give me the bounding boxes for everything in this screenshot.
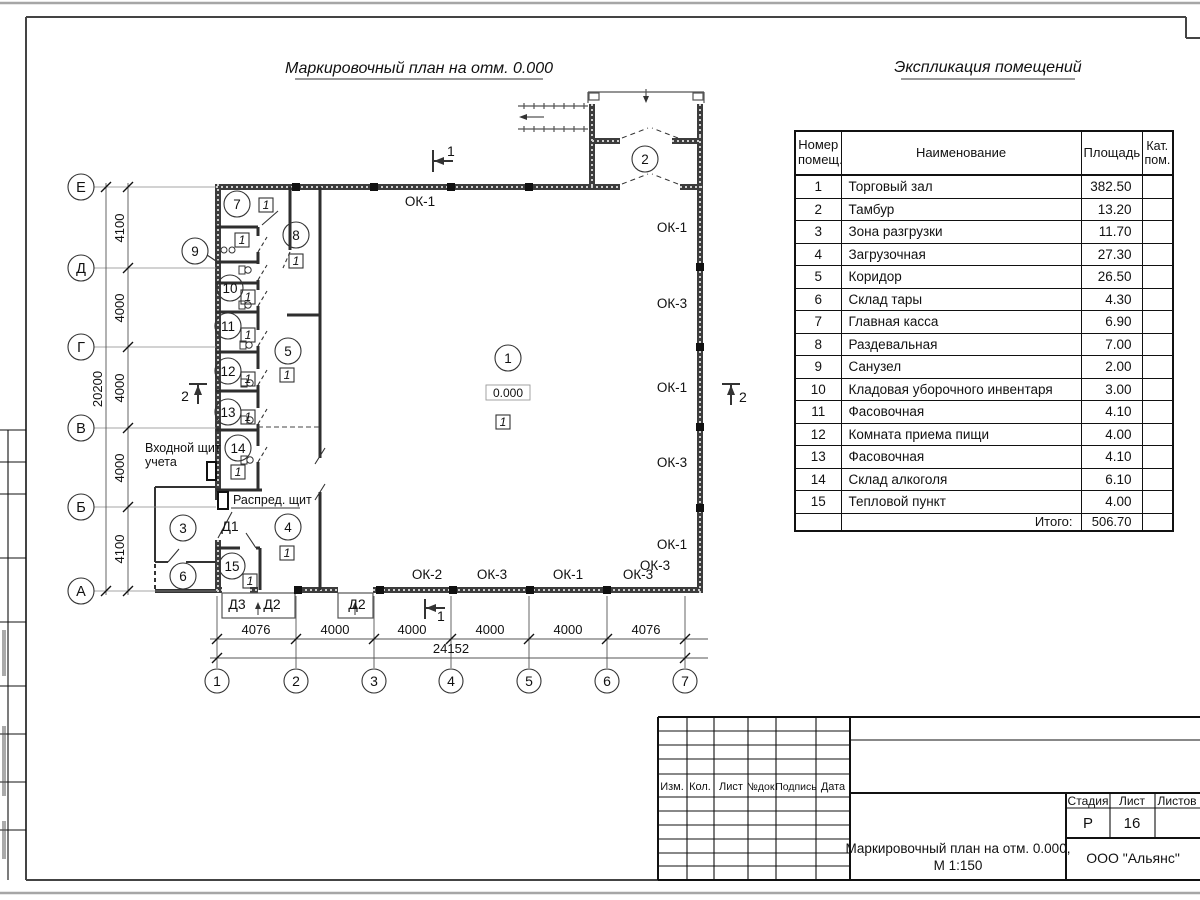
svg-text:4: 4: [447, 673, 455, 689]
dim-v3: 4000: [112, 374, 127, 403]
svg-text:14: 14: [230, 441, 246, 456]
door-label-d3: Д3: [228, 596, 245, 612]
entry-board-label-line1: Входной щит: [145, 441, 221, 455]
svg-text:5: 5: [525, 673, 533, 689]
dim-v2: 4000: [112, 294, 127, 323]
dim-v-total: 20200: [90, 371, 105, 407]
col-header-area: Площадь: [1081, 131, 1142, 175]
table-row: 5Коридор26.50: [795, 266, 1173, 289]
room-name: Зона разгрузки: [841, 221, 1081, 244]
room-num: 6: [795, 288, 841, 311]
axis-col-1: 1: [205, 669, 229, 693]
distribution-board-symbol: [218, 492, 228, 509]
stage-value: Р: [1083, 815, 1093, 832]
explication-title: Экспликация помещений: [894, 59, 1081, 76]
svg-text:1: 1: [245, 410, 252, 424]
type-marker: 1: [259, 198, 273, 212]
svg-text:1: 1: [245, 328, 252, 342]
stamp-vertical-text: [2, 726, 6, 796]
room-area: 4.30: [1081, 288, 1142, 311]
sheet-value: 16: [1124, 815, 1141, 832]
dim-h2: 4000: [321, 622, 350, 637]
svg-text:12: 12: [220, 364, 235, 379]
axis-row-d: Д: [68, 255, 94, 281]
room-num: 14: [795, 468, 841, 491]
svg-text:9: 9: [191, 244, 199, 259]
section-mark-2-left: 2: [181, 384, 207, 404]
table-header-row: Номер помещ. Наименование Площадь Кат. п…: [795, 131, 1173, 175]
title-block: Изм. Кол. Лист №док. Подпись Дата Стадия…: [658, 717, 1200, 880]
explication-table: Номер помещ. Наименование Площадь Кат. п…: [794, 130, 1172, 532]
svg-text:1: 1: [239, 233, 246, 247]
tb-header-podpis: Подпись: [775, 781, 817, 793]
room-area: 4.00: [1081, 491, 1142, 514]
room-label-15: 15: [219, 553, 245, 579]
table-row: 8Раздевальная7.00: [795, 333, 1173, 356]
section-mark-1-top: 1: [433, 143, 455, 172]
tb-header-data: Дата: [821, 781, 846, 793]
room-name: Санузел: [841, 356, 1081, 379]
room-label-1: 1: [495, 345, 521, 371]
axis-col-2: 2: [284, 669, 308, 693]
axis-row-e: Е: [68, 174, 94, 200]
room-area: 6.10: [1081, 468, 1142, 491]
svg-text:3: 3: [179, 521, 187, 536]
dim-v4: 4000: [112, 454, 127, 483]
svg-text:3: 3: [370, 673, 378, 689]
room-label-6: 6: [170, 563, 196, 589]
svg-text:15: 15: [224, 559, 239, 574]
table-row: 13Фасовочная4.10: [795, 446, 1173, 469]
table-total-row: Итого: 506.70: [795, 513, 1173, 531]
room-name: Фасовочная: [841, 446, 1081, 469]
window-label-top: ОК-1: [405, 194, 435, 209]
stamp-vertical-text: [2, 821, 6, 859]
room-area: 13.20: [1081, 198, 1142, 221]
type-marker: 1: [496, 415, 510, 429]
room-num: 4: [795, 243, 841, 266]
dim-h1: 4076: [242, 622, 271, 637]
elevation-mark: 0.000: [486, 385, 530, 400]
room-num: 8: [795, 333, 841, 356]
room-area: 382.50: [1081, 175, 1142, 198]
entry-board-symbol: [207, 462, 216, 480]
table-row: 1Торговый зал382.50: [795, 175, 1173, 198]
room-label-14: 14: [225, 435, 251, 461]
dim-h4: 4000: [476, 622, 505, 637]
svg-text:1: 1: [437, 608, 445, 624]
total-empty: [795, 513, 841, 531]
column-axes: 1 2 3 4 5 6 7: [205, 669, 697, 693]
room-num: 10: [795, 378, 841, 401]
room-name: Кладовая уборочного инвентаря: [841, 378, 1081, 401]
room-label-8: 8: [283, 222, 309, 248]
room-cat: [1142, 311, 1173, 334]
distribution-board-label: Распред. щит: [233, 493, 312, 507]
room-num: 9: [795, 356, 841, 379]
room-num: 5: [795, 266, 841, 289]
svg-text:6: 6: [603, 673, 611, 689]
window-label-bottom: ОК-2: [412, 567, 442, 582]
room-name: Торговый зал: [841, 175, 1081, 198]
col-header-cat: Кат. пом.: [1142, 131, 1173, 175]
svg-text:1: 1: [293, 254, 300, 268]
sheet-label: Лист: [1119, 794, 1146, 808]
svg-text:1: 1: [284, 546, 291, 560]
horizontal-dimensions: 4076 4000 4000 4000 4000 4076 24152: [210, 596, 708, 668]
arrow-up-icon: [255, 602, 261, 609]
room-name: Склад алкоголя: [841, 468, 1081, 491]
svg-text:2: 2: [739, 389, 747, 405]
doc-title-line1: Маркировочный план на отм. 0.000,: [846, 841, 1071, 856]
type-marker: 1: [235, 233, 249, 247]
tb-header-kol: Кол.: [689, 781, 711, 793]
total-value: 506.70: [1081, 513, 1142, 531]
room-label-3: 3: [170, 515, 196, 541]
axis-col-6: 6: [595, 669, 619, 693]
dim-v1: 4100: [112, 214, 127, 243]
vertical-dimensions: 4100 4000 4000 4000 4100 20200: [90, 182, 133, 596]
total-label: Итого:: [841, 513, 1081, 531]
room-name: Фасовочная: [841, 401, 1081, 424]
table-row: 6Склад тары4.30: [795, 288, 1173, 311]
room-area: 4.10: [1081, 446, 1142, 469]
col-header-name: Наименование: [841, 131, 1081, 175]
window-label-bottom: ОК-3: [623, 567, 653, 582]
room-num: 2: [795, 198, 841, 221]
room-cat: [1142, 446, 1173, 469]
svg-text:1: 1: [247, 574, 254, 588]
axis-col-5: 5: [517, 669, 541, 693]
table-row: 2Тамбур13.20: [795, 198, 1173, 221]
table-row: 14Склад алкоголя6.10: [795, 468, 1173, 491]
tb-header-ndok: №док.: [747, 781, 778, 793]
room-cat: [1142, 378, 1173, 401]
window-label-right: ОК-1: [657, 380, 687, 395]
entry-board-label-line2: учета: [145, 455, 177, 469]
svg-text:2: 2: [181, 388, 189, 404]
room-cat: [1142, 356, 1173, 379]
door-label-d2: Д2: [263, 596, 280, 612]
type-marker: 1: [289, 254, 303, 268]
axis-row-a: А: [68, 578, 94, 604]
svg-text:10: 10: [222, 281, 237, 296]
room-area: 26.50: [1081, 266, 1142, 289]
room-name: Склад тары: [841, 288, 1081, 311]
room-num: 13: [795, 446, 841, 469]
svg-text:11: 11: [221, 319, 235, 334]
room-label-4: 4: [275, 514, 301, 540]
axis-row-v: В: [68, 415, 94, 441]
room-cat: [1142, 401, 1173, 424]
room-cat: [1142, 243, 1173, 266]
arrow-left-icon: [519, 114, 527, 120]
room-cat: [1142, 221, 1173, 244]
col-header-number: Номер помещ.: [795, 131, 841, 175]
dim-h3: 4000: [398, 622, 427, 637]
stamp-vertical-text: [2, 630, 6, 676]
room-cat: [1142, 491, 1173, 514]
room-schedule: Номер помещ. Наименование Площадь Кат. п…: [794, 130, 1174, 532]
room-num: 1: [795, 175, 841, 198]
svg-text:1: 1: [284, 368, 291, 382]
table-row: 12Комната приема пищи4.00: [795, 423, 1173, 446]
dim-h6: 4076: [632, 622, 661, 637]
arrow-down-icon: [643, 96, 649, 103]
axis-row-g: Г: [68, 334, 94, 360]
room-num: 11: [795, 401, 841, 424]
svg-text:Д: Д: [76, 261, 86, 277]
room-num: 3: [795, 221, 841, 244]
door-label-d2: Д2: [348, 596, 365, 612]
type-marker: 1: [241, 328, 255, 342]
room-label-5: 5: [275, 338, 301, 364]
axis-col-3: 3: [362, 669, 386, 693]
sheets-label: Листов: [1158, 794, 1197, 808]
room-label-7: 7: [224, 191, 250, 217]
svg-text:2: 2: [292, 673, 300, 689]
svg-text:1: 1: [504, 351, 512, 366]
room-num: 12: [795, 423, 841, 446]
table-row: 9Санузел2.00: [795, 356, 1173, 379]
svg-text:1: 1: [447, 143, 455, 159]
room-name: Коридор: [841, 266, 1081, 289]
title-block-headers: Изм. Кол. Лист №док. Подпись Дата: [660, 781, 846, 793]
type-marker: 1: [280, 368, 294, 382]
company-name: ООО "Альянс": [1086, 850, 1180, 866]
svg-text:Е: Е: [76, 180, 86, 196]
drawing-sheet: { "page": { "plan_title": "Маркировочный…: [0, 0, 1200, 900]
type-marker: 1: [231, 465, 245, 479]
svg-text:1: 1: [500, 415, 507, 429]
room-cat: [1142, 288, 1173, 311]
left-margin-stamp: [0, 430, 26, 880]
type-markers: 1 1 1 1 1 1 1 1 1 1 1 1: [231, 198, 510, 588]
section-mark-1-bottom: 1: [425, 599, 445, 624]
svg-text:1: 1: [263, 198, 270, 212]
svg-text:13: 13: [220, 405, 235, 420]
svg-text:4: 4: [284, 520, 292, 535]
table-row: 3Зона разгрузки11.70: [795, 221, 1173, 244]
svg-text:1: 1: [245, 372, 252, 386]
room-cat: [1142, 468, 1173, 491]
window-labels: ОК-1 ОК-1 ОК-3 ОК-1 ОК-3 ОК-1 ОК-3 ОК-2 …: [405, 194, 687, 582]
svg-text:Г: Г: [77, 340, 85, 356]
window-label-bottom: ОК-1: [553, 567, 583, 582]
window-label-right: ОК-3: [657, 296, 687, 311]
doc-title-line2: М 1:150: [934, 858, 983, 873]
svg-text:1: 1: [245, 290, 252, 304]
entrance-canopy: [588, 89, 704, 103]
svg-text:5: 5: [284, 344, 292, 359]
svg-text:1: 1: [235, 465, 242, 479]
svg-text:2: 2: [641, 152, 649, 167]
ramp: [518, 103, 588, 132]
room-area: 2.00: [1081, 356, 1142, 379]
window-label-right: ОК-3: [657, 455, 687, 470]
type-marker: 1: [280, 546, 294, 560]
elevation-value: 0.000: [493, 386, 523, 400]
door-label-d1: Д1: [221, 518, 238, 534]
dim-h-total: 24152: [433, 641, 469, 656]
electrical-boards: Входной щит учета Распред. щит: [145, 441, 312, 509]
room-area: 27.30: [1081, 243, 1142, 266]
stage-label: Стадия: [1068, 794, 1109, 808]
svg-text:6: 6: [179, 569, 187, 584]
room-labels: 1 2 3 4 5 6 7 8 9 10 11 12 13 14 15: [170, 146, 658, 589]
room-name: Раздевальная: [841, 333, 1081, 356]
room-cat: [1142, 175, 1173, 198]
room-cat: [1142, 333, 1173, 356]
plan-title: Маркировочный план на отм. 0.000: [285, 60, 553, 77]
section-mark-2-right: 2: [722, 384, 747, 405]
room-area: 3.00: [1081, 378, 1142, 401]
axis-row-b: Б: [68, 494, 94, 520]
svg-text:1: 1: [213, 673, 221, 689]
dim-v5: 4100: [112, 535, 127, 564]
room-name: Главная касса: [841, 311, 1081, 334]
table-row: 4Загрузочная27.30: [795, 243, 1173, 266]
room-cat: [1142, 266, 1173, 289]
svg-text:А: А: [76, 584, 86, 600]
room-num: 15: [795, 491, 841, 514]
room-cat: [1142, 198, 1173, 221]
room-num: 7: [795, 311, 841, 334]
svg-text:7: 7: [233, 197, 241, 212]
tb-header-list: Лист: [719, 781, 743, 793]
window-label-right: ОК-1: [657, 220, 687, 235]
room-name: Тамбур: [841, 198, 1081, 221]
room-cat: [1142, 423, 1173, 446]
window-label-bottom: ОК-3: [477, 567, 507, 582]
dim-h5: 4000: [554, 622, 583, 637]
table-row: 7Главная касса6.90: [795, 311, 1173, 334]
table-row: 11Фасовочная4.10: [795, 401, 1173, 424]
axis-col-7: 7: [673, 669, 697, 693]
axis-col-4: 4: [439, 669, 463, 693]
svg-text:7: 7: [681, 673, 689, 689]
room-name: Комната приема пищи: [841, 423, 1081, 446]
type-marker: 1: [243, 574, 257, 588]
door-labels: Д1 Д3 Д2 Д2: [221, 518, 365, 612]
room-area: 6.90: [1081, 311, 1142, 334]
svg-text:В: В: [76, 421, 86, 437]
table-row: 10Кладовая уборочного инвентаря3.00: [795, 378, 1173, 401]
room-area: 7.00: [1081, 333, 1142, 356]
table-row: 15Тепловой пункт4.00: [795, 491, 1173, 514]
room-label-2: 2: [632, 146, 658, 172]
window-label-right: ОК-1: [657, 537, 687, 552]
room-area: 11.70: [1081, 221, 1142, 244]
total-cat: [1142, 513, 1173, 531]
room-name: Загрузочная: [841, 243, 1081, 266]
room-label-9: 9: [182, 238, 219, 264]
room-area: 4.00: [1081, 423, 1142, 446]
room-name: Тепловой пункт: [841, 491, 1081, 514]
room-area: 4.10: [1081, 401, 1142, 424]
svg-text:Б: Б: [76, 500, 86, 516]
tb-header-izm: Изм.: [660, 781, 684, 793]
svg-text:8: 8: [292, 228, 300, 243]
